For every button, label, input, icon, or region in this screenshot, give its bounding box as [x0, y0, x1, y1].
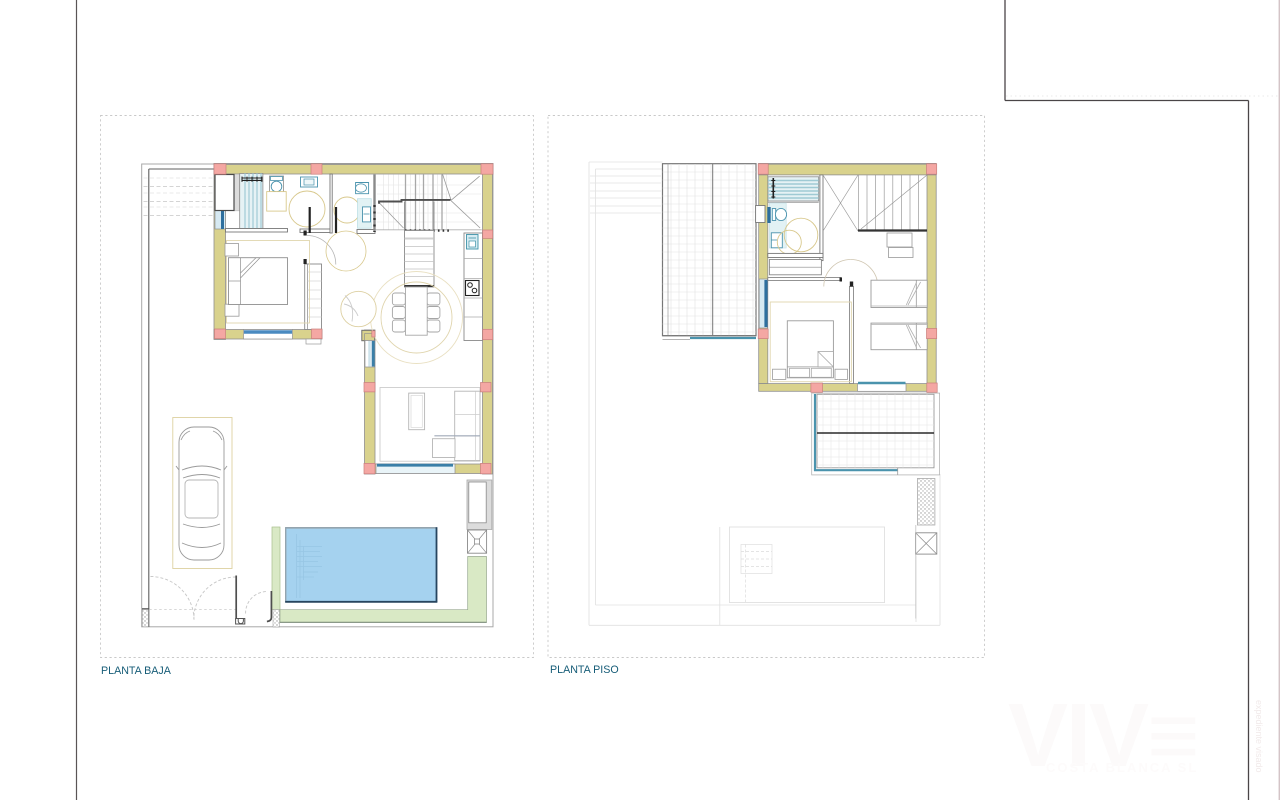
svg-text:expediente visado: expediente visado: [1254, 700, 1264, 773]
svg-text:PLANTA BAJA: PLANTA BAJA: [101, 665, 172, 677]
svg-text:COSTA BLANCA SL: COSTA BLANCA SL: [1046, 760, 1198, 775]
svg-text:PLANTA PISO: PLANTA PISO: [550, 664, 619, 676]
